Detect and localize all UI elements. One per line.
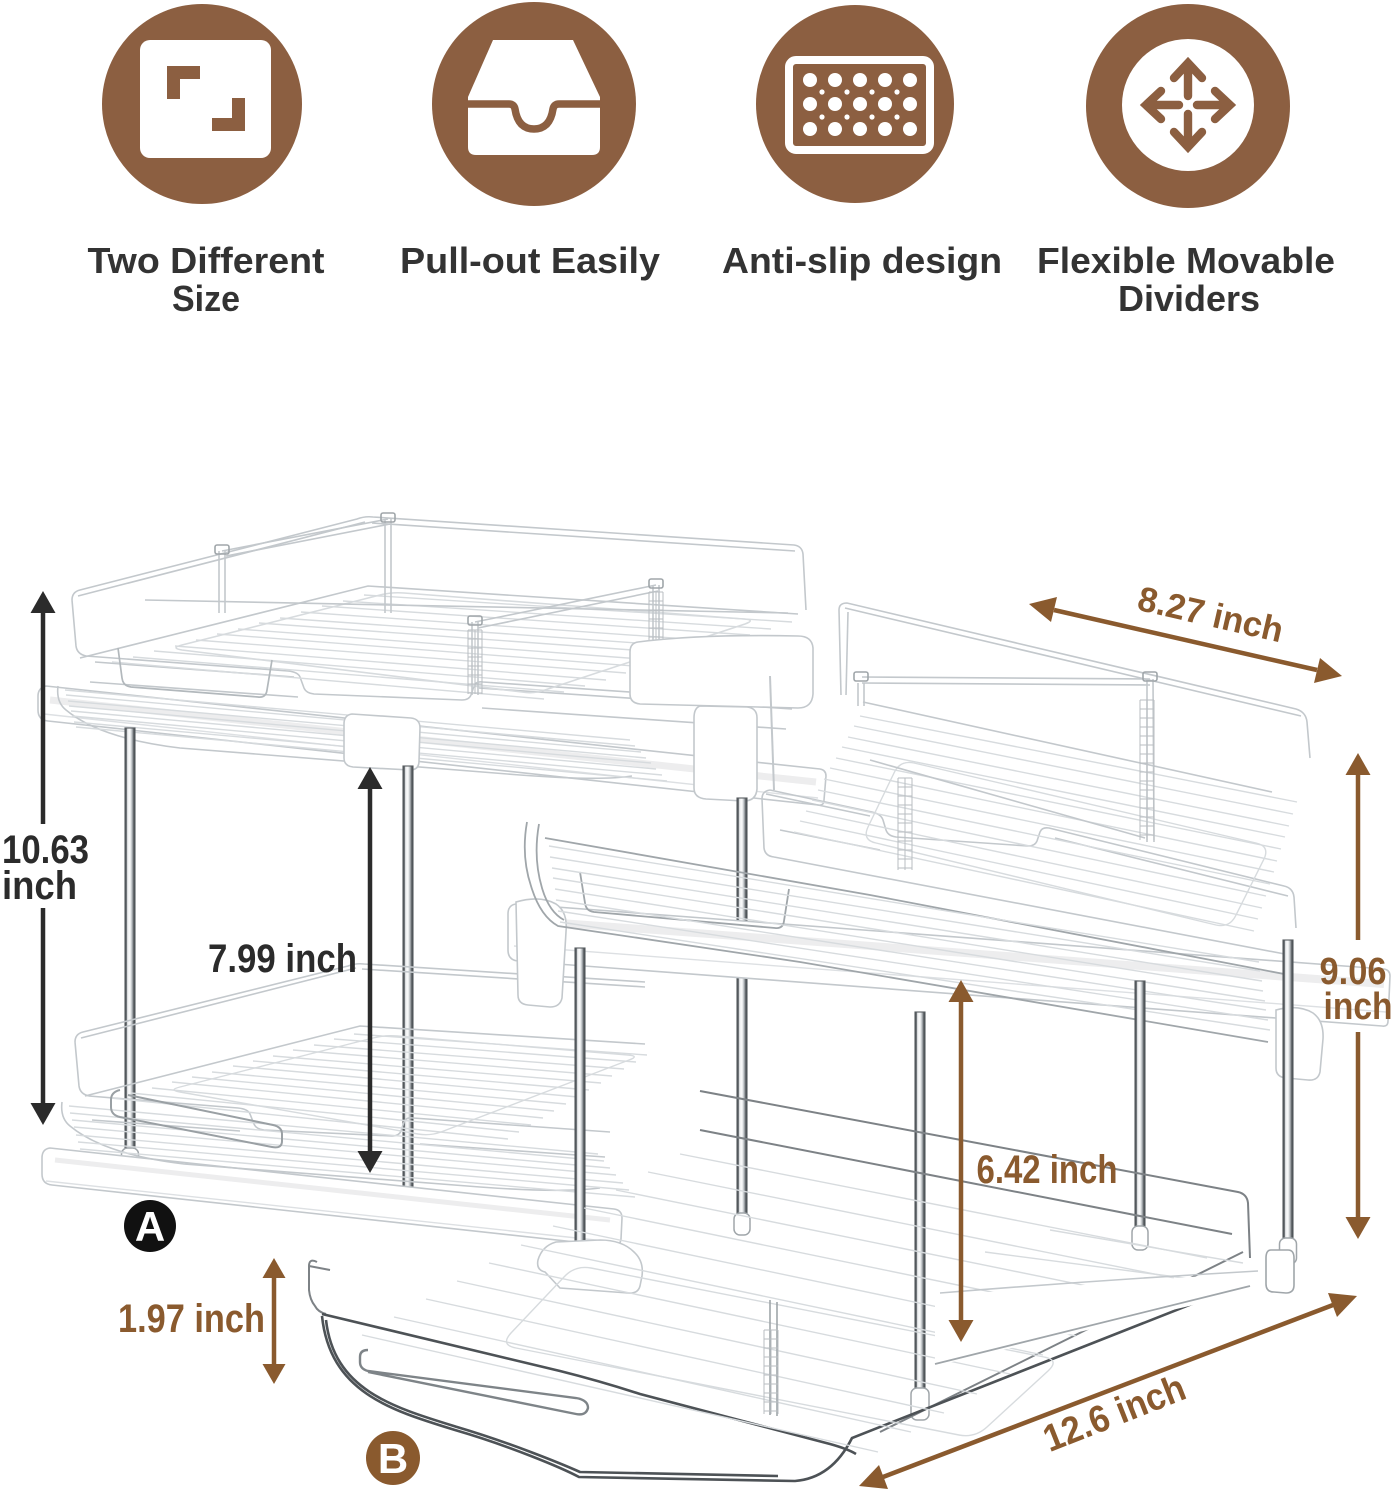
- svg-text:7.99 inch: 7.99 inch: [208, 937, 357, 981]
- svg-text:Pull-out Easily: Pull-out Easily: [400, 240, 660, 281]
- svg-text:inch: inch: [2, 864, 77, 908]
- svg-text:Size: Size: [172, 278, 240, 319]
- svg-text:A: A: [135, 1203, 165, 1250]
- svg-text:Anti-slip design: Anti-slip design: [722, 240, 1002, 281]
- svg-text:Two Different: Two Different: [88, 240, 325, 281]
- svg-text:inch: inch: [1324, 986, 1393, 1028]
- svg-text:B: B: [378, 1435, 408, 1482]
- svg-text:1.97 inch: 1.97 inch: [118, 1297, 265, 1341]
- svg-text:Dividers: Dividers: [1118, 278, 1260, 319]
- svg-text:Flexible Movable: Flexible Movable: [1037, 240, 1335, 281]
- svg-text:6.42 inch: 6.42 inch: [977, 1148, 1118, 1192]
